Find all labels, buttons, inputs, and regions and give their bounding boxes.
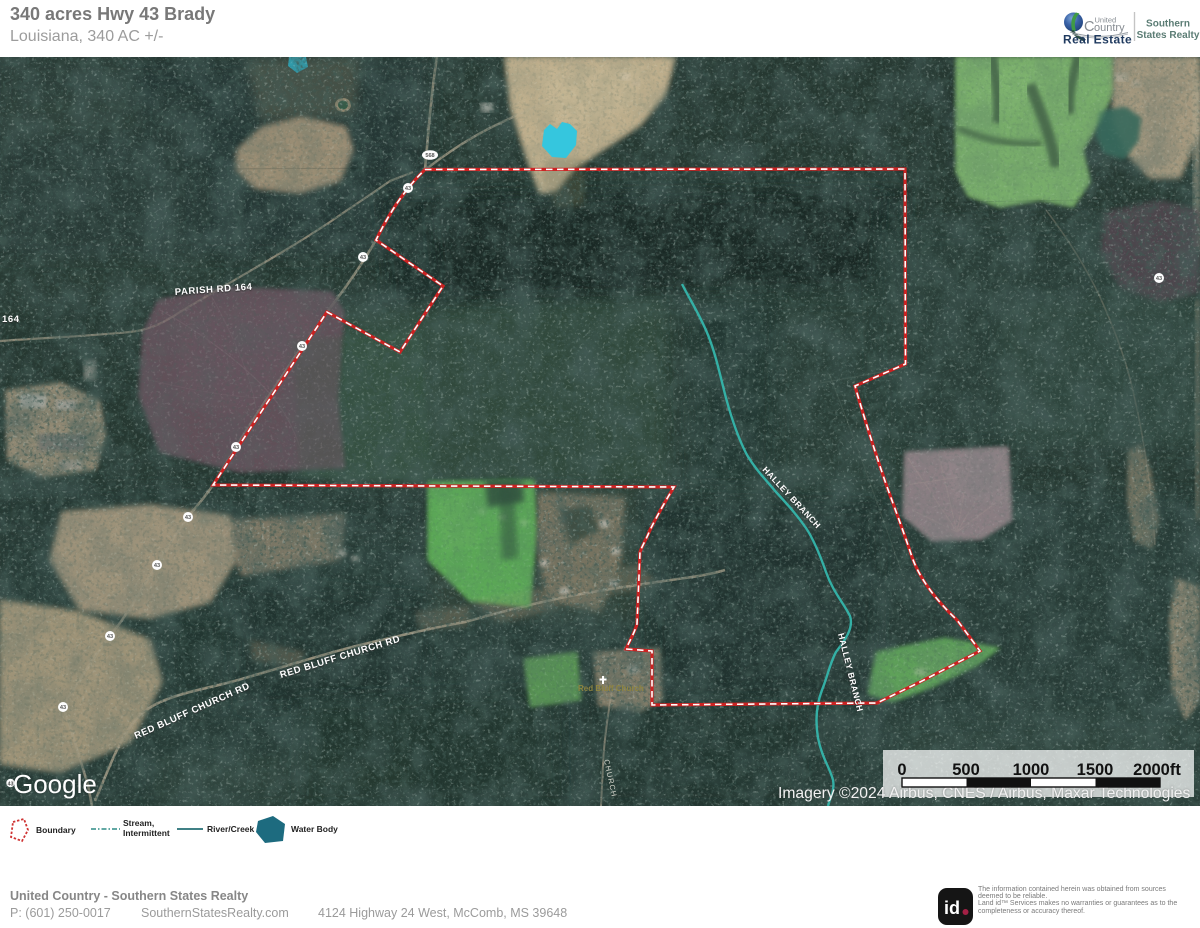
svg-text:43: 43 [360,255,366,261]
svg-text:Water Body: Water Body [291,824,338,834]
svg-text:500: 500 [952,761,980,779]
svg-text:Stream,: Stream, [123,818,154,828]
svg-text:43: 43 [405,186,411,192]
svg-text:164: 164 [2,314,20,325]
svg-text:568: 568 [425,153,434,159]
svg-text:43: 43 [185,515,191,521]
svg-text:43: 43 [1156,276,1162,282]
svg-text:0: 0 [897,761,906,779]
svg-text:43: 43 [107,634,113,640]
svg-text:Intermittent: Intermittent [123,828,170,838]
svg-text:43: 43 [233,445,239,451]
svg-text:Red Bluff Church: Red Bluff Church [578,684,644,693]
svg-text:43: 43 [299,344,305,350]
svg-text:Google: Google [13,769,97,799]
svg-text:1500: 1500 [1077,761,1114,779]
svg-text:2000ft: 2000ft [1133,761,1181,779]
svg-text:River/Creek: River/Creek [207,824,255,834]
svg-text:43: 43 [60,705,66,711]
svg-text:id: id [944,898,960,918]
svg-text:1000: 1000 [1013,761,1050,779]
svg-text:Boundary: Boundary [36,825,76,835]
svg-text:43: 43 [154,563,160,569]
